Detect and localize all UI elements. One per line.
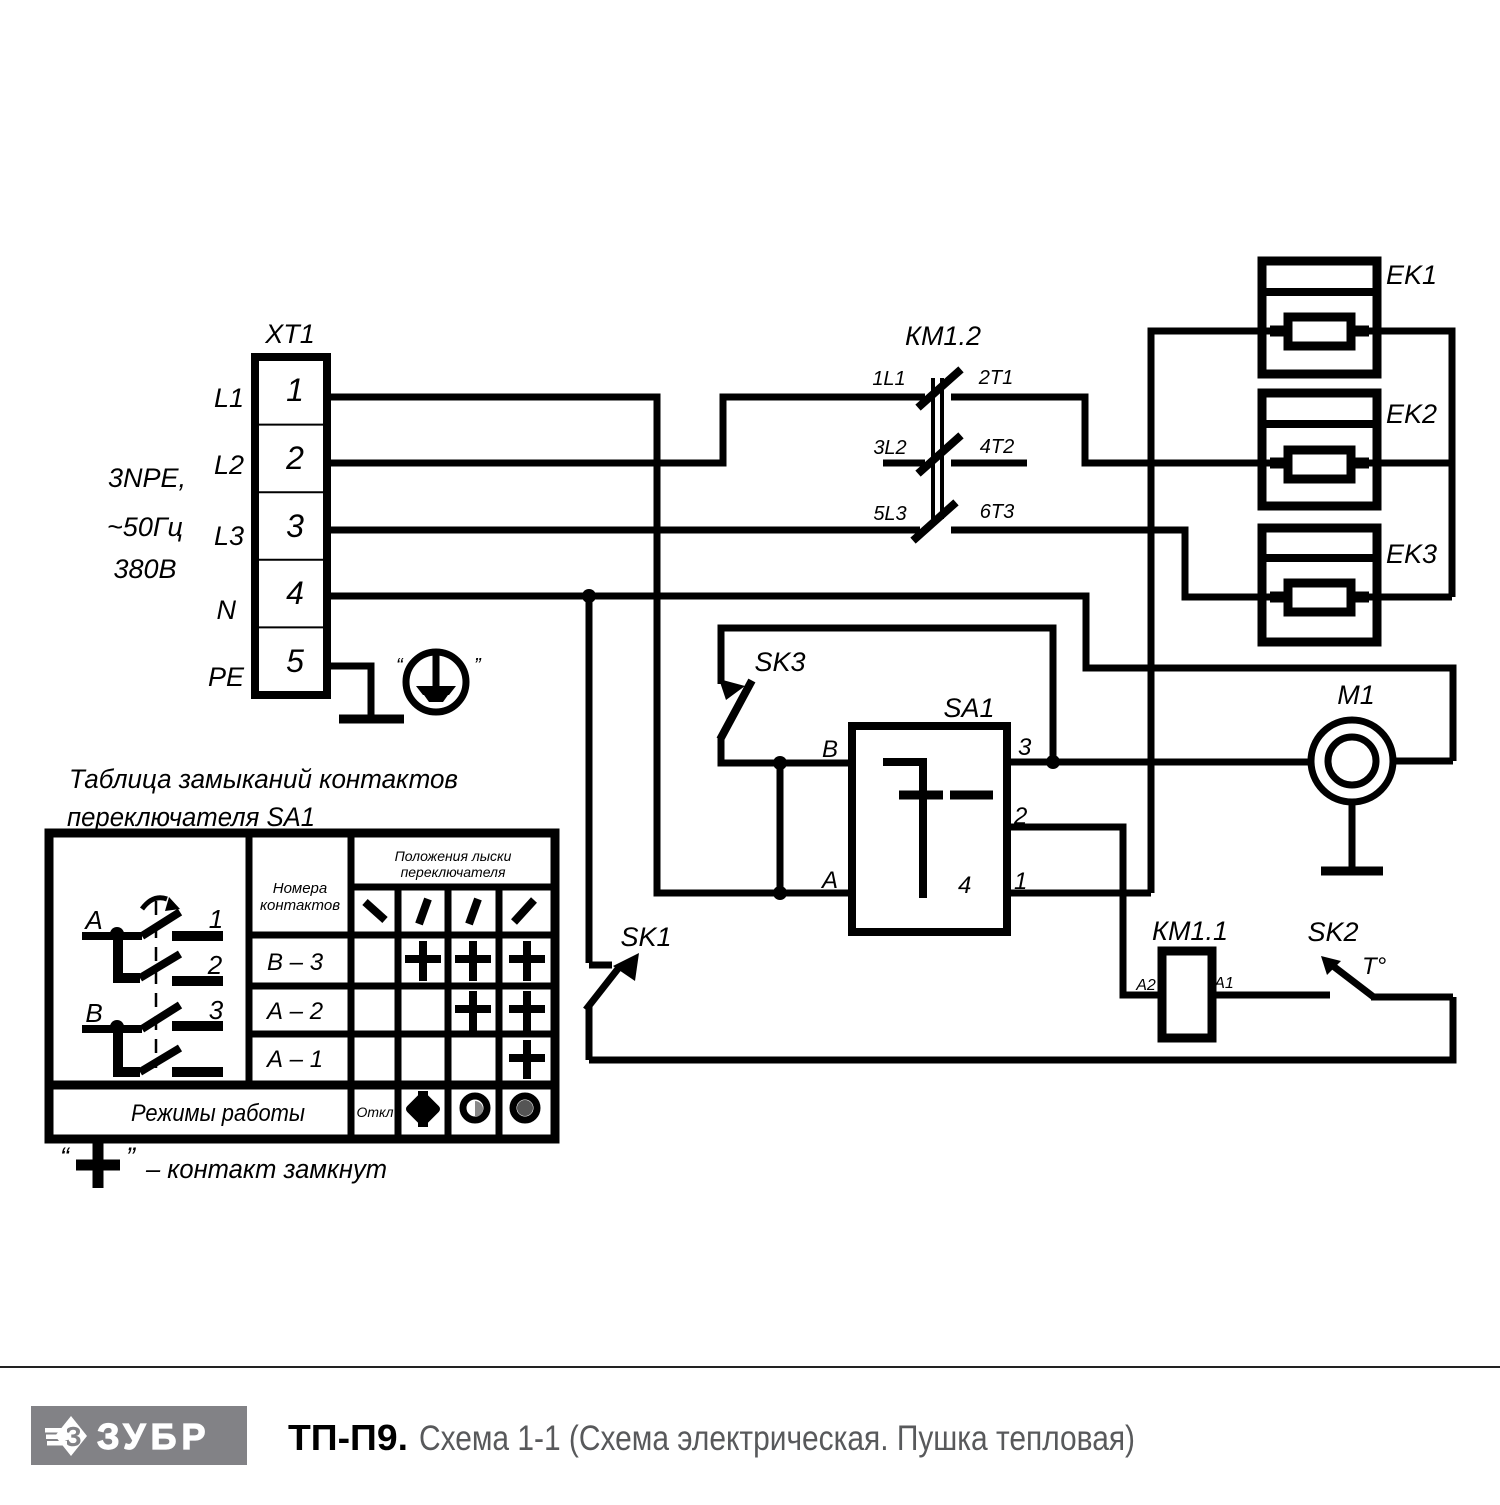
svg-text:3L2: 3L2 bbox=[873, 437, 906, 459]
svg-text:380В: 380В bbox=[113, 554, 176, 584]
svg-text:5: 5 bbox=[286, 643, 304, 679]
svg-text:1: 1 bbox=[209, 904, 223, 934]
svg-text:контактов: контактов bbox=[260, 897, 340, 914]
svg-text:SK1: SK1 bbox=[620, 922, 671, 952]
svg-text:EK1: EK1 bbox=[1386, 260, 1437, 290]
svg-text:3: 3 bbox=[286, 508, 304, 544]
svg-text:В – 3: В – 3 bbox=[267, 949, 324, 976]
svg-text:N: N bbox=[217, 595, 237, 625]
svg-text:Положения лыски: Положения лыски bbox=[395, 848, 512, 864]
svg-text:3NPE,: 3NPE, bbox=[108, 463, 186, 493]
svg-text:КМ1.1: КМ1.1 bbox=[1152, 916, 1228, 946]
svg-text:SA1: SA1 bbox=[943, 693, 994, 723]
svg-text:4: 4 bbox=[286, 575, 304, 611]
svg-text:ЗУБР: ЗУБР bbox=[97, 1416, 210, 1457]
svg-text:Режимы работы: Режимы работы bbox=[131, 1100, 305, 1127]
svg-text:Т°: Т° bbox=[1362, 953, 1387, 980]
svg-text:~50Гц: ~50Гц bbox=[107, 512, 183, 542]
svg-text:А1: А1 bbox=[1213, 975, 1234, 992]
svg-text:3: 3 bbox=[209, 995, 224, 1025]
svg-text:2: 2 bbox=[207, 950, 223, 980]
svg-text:PE: PE bbox=[208, 662, 245, 692]
svg-text:М1: М1 bbox=[1337, 680, 1375, 710]
svg-text:Откл: Откл bbox=[356, 1104, 393, 1120]
svg-text:4T2: 4T2 bbox=[980, 436, 1014, 458]
svg-text:Схема 1-1 (Схема электрическая: Схема 1-1 (Схема электрическая. Пушка те… bbox=[419, 1419, 1135, 1458]
svg-text:КМ1.2: КМ1.2 bbox=[905, 321, 981, 351]
svg-text:В: В bbox=[85, 998, 102, 1028]
svg-text:L2: L2 bbox=[214, 450, 244, 480]
svg-text:– контакт замкнут: – контакт замкнут bbox=[145, 1154, 387, 1184]
svg-text:2: 2 bbox=[1013, 803, 1027, 830]
svg-text:L1: L1 bbox=[214, 383, 244, 413]
svg-text:Номера: Номера bbox=[273, 880, 328, 897]
svg-text:3: 3 bbox=[1018, 734, 1032, 761]
svg-text:2T1: 2T1 bbox=[978, 367, 1013, 389]
svg-text:1: 1 bbox=[1014, 868, 1027, 895]
svg-text:SK2: SK2 bbox=[1307, 917, 1358, 947]
svg-text:1L1: 1L1 bbox=[872, 368, 905, 390]
svg-text:2: 2 bbox=[285, 440, 304, 476]
svg-text:5L3: 5L3 bbox=[873, 503, 906, 525]
svg-text:EK2: EK2 bbox=[1386, 399, 1437, 429]
svg-text:А2: А2 bbox=[1135, 977, 1156, 994]
svg-text:Таблица замыканий контактов: Таблица замыканий контактов bbox=[69, 764, 458, 794]
svg-text:SK3: SK3 bbox=[754, 647, 805, 677]
svg-text:А: А bbox=[83, 905, 102, 935]
svg-text:А – 1: А – 1 bbox=[265, 1046, 323, 1073]
svg-text:ТП-П9.: ТП-П9. bbox=[288, 1417, 408, 1458]
svg-text:переключателя SA1: переключателя SA1 bbox=[67, 802, 315, 832]
svg-text:А – 2: А – 2 bbox=[265, 998, 323, 1025]
svg-text:”: ” bbox=[126, 1142, 136, 1172]
svg-text:EK3: EK3 bbox=[1386, 539, 1437, 569]
svg-text:6T3: 6T3 bbox=[980, 501, 1014, 523]
svg-text:L3: L3 bbox=[214, 521, 244, 551]
svg-text:1: 1 bbox=[286, 372, 304, 408]
svg-text:А: А bbox=[820, 867, 838, 894]
svg-text:XT1: XT1 bbox=[264, 319, 315, 349]
svg-text:переключателя: переключателя bbox=[401, 864, 506, 880]
svg-text:4: 4 bbox=[958, 872, 971, 899]
svg-text:B: B bbox=[822, 736, 838, 763]
